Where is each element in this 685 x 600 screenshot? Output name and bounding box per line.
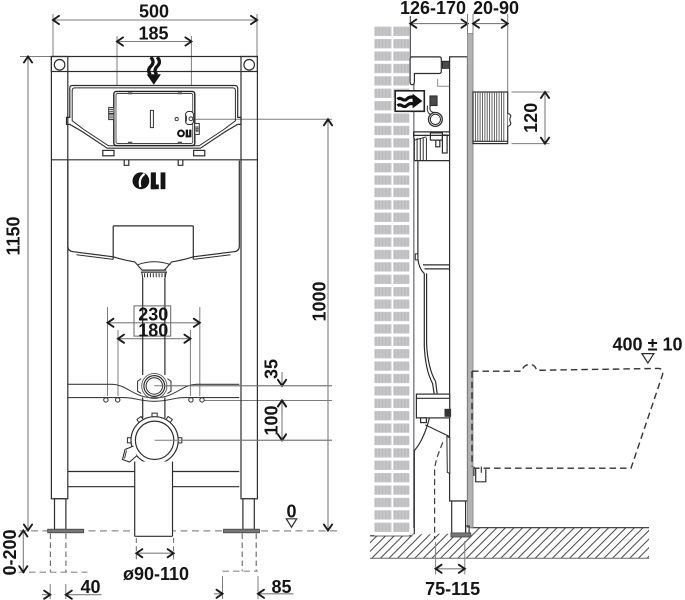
svg-text:35: 35 xyxy=(262,359,282,379)
svg-text:75-115: 75-115 xyxy=(425,579,480,599)
svg-text:500: 500 xyxy=(139,2,169,22)
svg-text:20-90: 20-90 xyxy=(473,0,519,18)
svg-text:ø90-110: ø90-110 xyxy=(123,564,189,584)
svg-text:180: 180 xyxy=(138,321,168,341)
svg-text:126-170: 126-170 xyxy=(400,0,466,18)
svg-text:0-200: 0-200 xyxy=(0,529,20,575)
svg-text:100: 100 xyxy=(262,405,282,435)
svg-text:1000: 1000 xyxy=(310,281,330,321)
svg-text:185: 185 xyxy=(138,24,168,44)
svg-text:40: 40 xyxy=(80,577,100,597)
svg-text:1150: 1150 xyxy=(4,216,24,255)
svg-text:85: 85 xyxy=(271,577,291,597)
svg-text:120: 120 xyxy=(521,103,541,133)
svg-text:400 ± 10: 400 ± 10 xyxy=(613,334,683,354)
